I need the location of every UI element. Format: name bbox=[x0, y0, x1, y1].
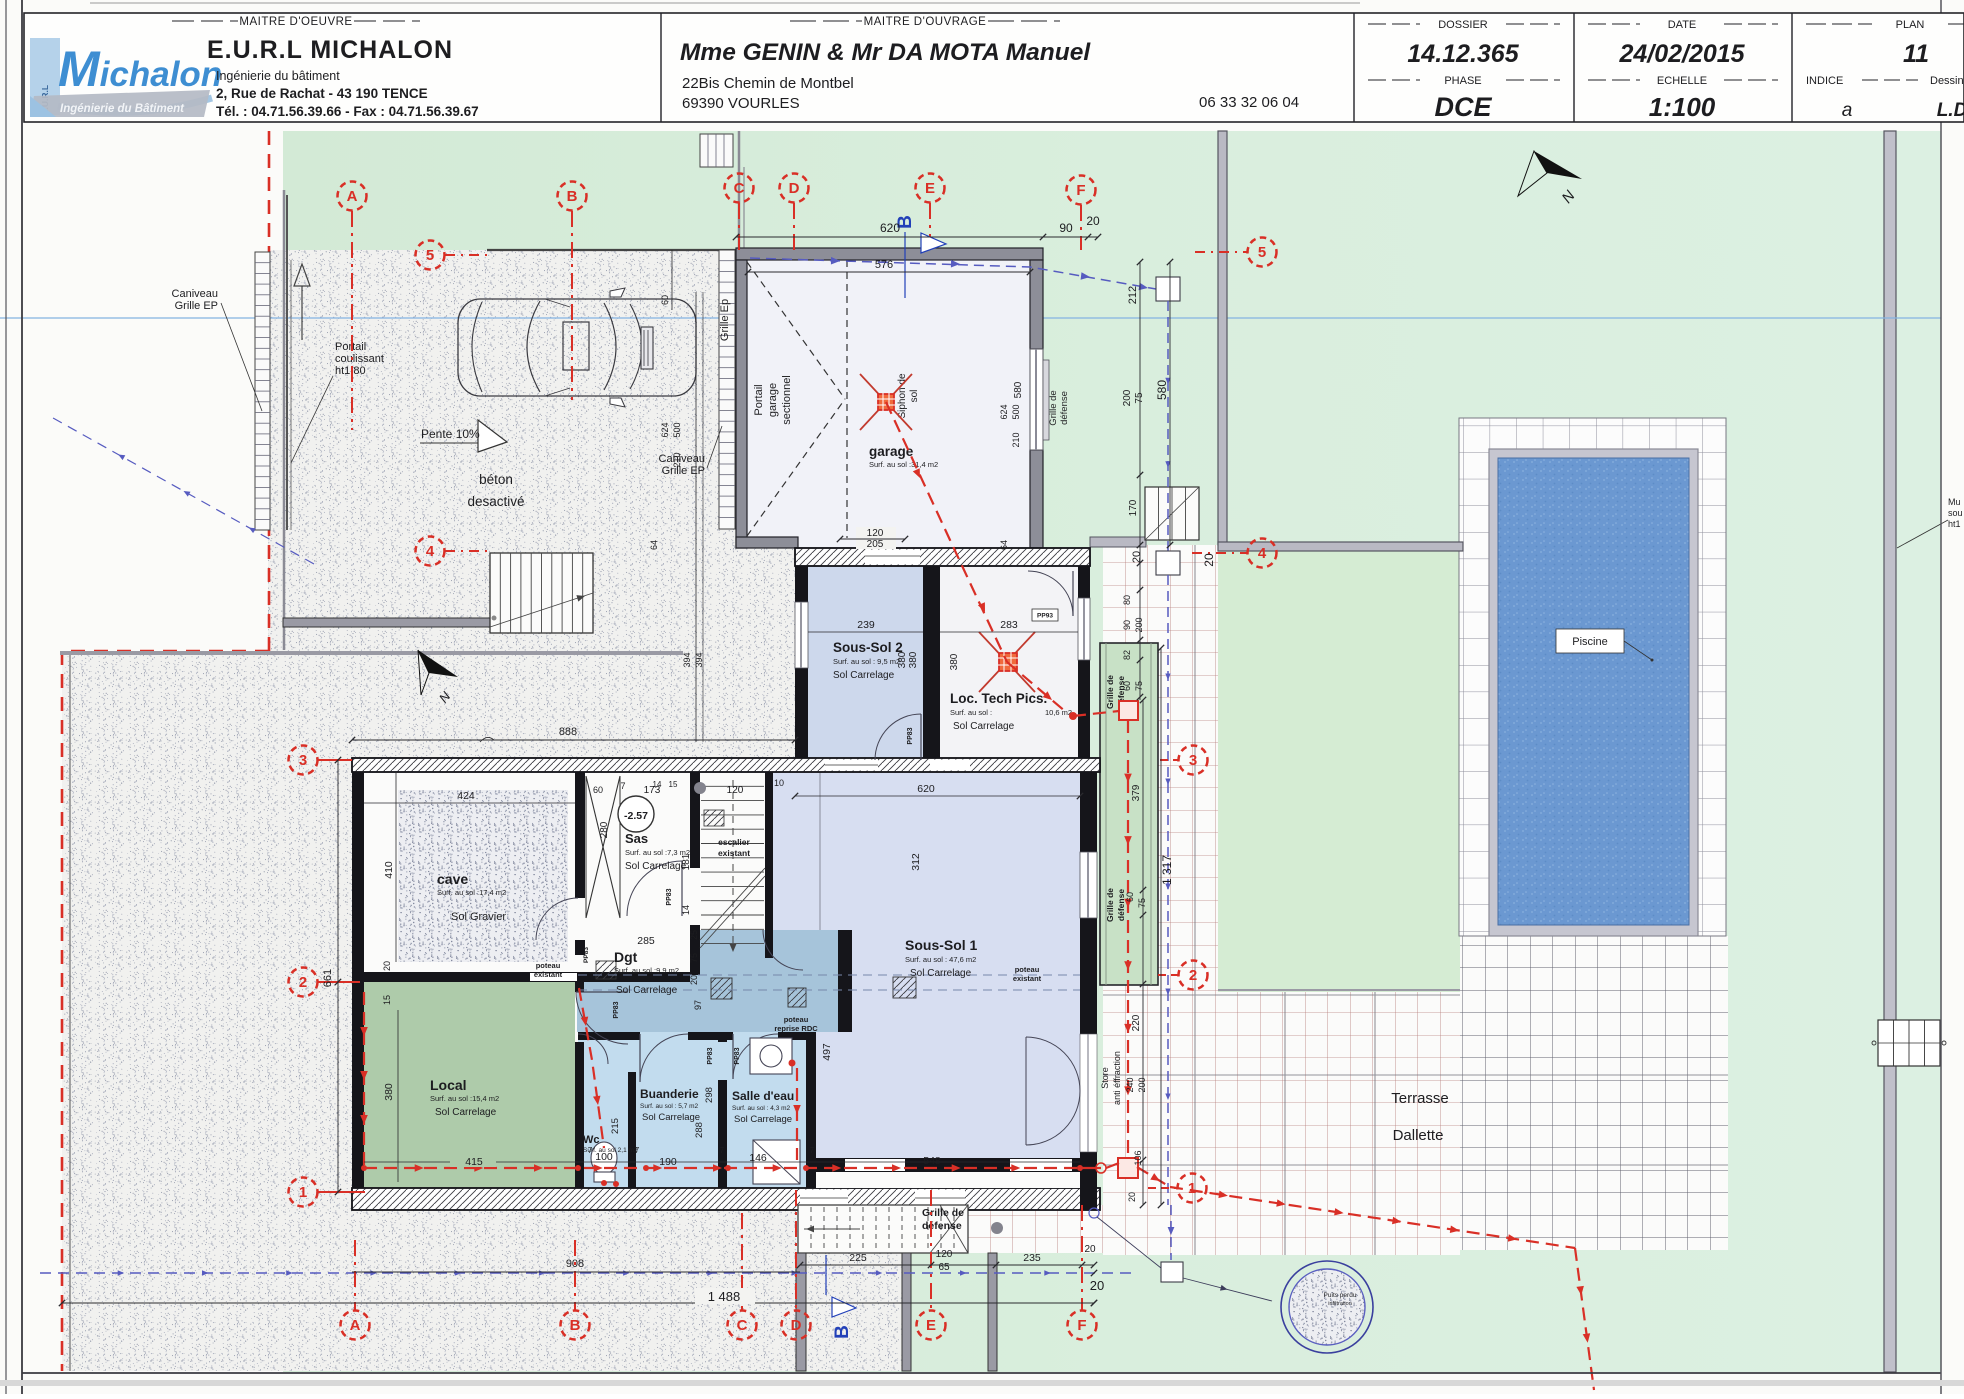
svg-text:PP83: PP83 bbox=[613, 1001, 620, 1018]
svg-text:DCE: DCE bbox=[1434, 92, 1492, 122]
svg-text:146: 146 bbox=[749, 1152, 767, 1164]
svg-text:173: 173 bbox=[644, 785, 661, 796]
svg-text:PP83: PP83 bbox=[583, 947, 590, 963]
svg-text:Surf. au sol : 5,7 m2: Surf. au sol : 5,7 m2 bbox=[640, 1103, 699, 1110]
svg-text:Grille de: Grille de bbox=[922, 1207, 964, 1219]
svg-text:15: 15 bbox=[669, 780, 678, 789]
svg-text:Sol Carrelage: Sol Carrelage bbox=[616, 985, 678, 996]
svg-text:20: 20 bbox=[382, 961, 392, 971]
svg-text:Local: Local bbox=[430, 1077, 467, 1093]
svg-text:escalier: escalier bbox=[718, 837, 750, 847]
svg-text:5: 5 bbox=[1258, 244, 1266, 261]
svg-text:1 317: 1 317 bbox=[1160, 855, 1174, 885]
svg-text:620: 620 bbox=[917, 783, 935, 795]
svg-text:75: 75 bbox=[1134, 392, 1145, 404]
svg-text:64: 64 bbox=[649, 540, 659, 550]
svg-text:Surf. au sol :: Surf. au sol : bbox=[950, 708, 992, 717]
svg-text:Sous-Sol 1: Sous-Sol 1 bbox=[905, 937, 978, 953]
svg-text:DATE: DATE bbox=[1668, 19, 1697, 31]
svg-text:Puits perdu: Puits perdu bbox=[1324, 1292, 1357, 1299]
svg-text:90: 90 bbox=[1059, 221, 1073, 235]
svg-text:181: 181 bbox=[681, 853, 692, 870]
svg-text:A: A bbox=[347, 188, 358, 205]
svg-text:7: 7 bbox=[588, 1146, 593, 1155]
svg-text:Dessiné: Dessiné bbox=[1930, 75, 1964, 87]
svg-text:1 488: 1 488 bbox=[708, 1289, 741, 1304]
svg-text:poteau: poteau bbox=[536, 961, 561, 970]
svg-text:Wc: Wc bbox=[583, 1134, 600, 1146]
svg-text:Grille EP: Grille EP bbox=[175, 300, 218, 312]
svg-text:A: A bbox=[350, 1317, 361, 1334]
svg-text:desactivé: desactivé bbox=[467, 494, 524, 509]
svg-text:1: 1 bbox=[1188, 1180, 1196, 1197]
svg-text:120: 120 bbox=[936, 1249, 953, 1260]
svg-text:3: 3 bbox=[299, 752, 307, 769]
svg-text:69390 VOURLES: 69390 VOURLES bbox=[682, 95, 800, 112]
svg-text:410: 410 bbox=[383, 861, 395, 879]
svg-text:240: 240 bbox=[1125, 1077, 1135, 1092]
svg-text:82: 82 bbox=[1122, 650, 1132, 660]
svg-text:190: 190 bbox=[659, 1156, 677, 1168]
svg-text:10,6 m2: 10,6 m2 bbox=[1045, 708, 1072, 717]
svg-text:C: C bbox=[734, 180, 745, 197]
svg-text:sou: sou bbox=[1948, 508, 1963, 518]
svg-text:Mme GENIN & Mr DA MOTA Manuel: Mme GENIN & Mr DA MOTA Manuel bbox=[680, 39, 1091, 66]
svg-text:210: 210 bbox=[672, 452, 682, 467]
svg-text:béton: béton bbox=[479, 472, 513, 487]
svg-text:20: 20 bbox=[1127, 1192, 1137, 1202]
svg-text:Ingénierie du bâtiment: Ingénierie du bâtiment bbox=[216, 69, 340, 83]
svg-text:ht1: ht1 bbox=[1948, 519, 1961, 529]
svg-text:reprise RDC: reprise RDC bbox=[774, 1024, 818, 1033]
svg-text:F: F bbox=[1077, 1317, 1086, 1334]
svg-text:14: 14 bbox=[681, 905, 691, 915]
svg-text:E: E bbox=[926, 1317, 936, 1334]
svg-text:Pente 10%: Pente 10% bbox=[421, 427, 480, 441]
svg-text:200: 200 bbox=[1134, 617, 1144, 632]
svg-text:PP83: PP83 bbox=[907, 727, 914, 744]
svg-text:PP83: PP83 bbox=[734, 1047, 741, 1064]
svg-text:120: 120 bbox=[867, 528, 884, 539]
svg-text:Portail: Portail bbox=[335, 341, 366, 353]
svg-text:60: 60 bbox=[660, 295, 670, 305]
svg-text:1:100: 1:100 bbox=[1649, 92, 1716, 122]
svg-text:Caniveau: Caniveau bbox=[172, 288, 218, 300]
svg-text:Surf. au sol :17,4 m2: Surf. au sol :17,4 m2 bbox=[437, 888, 506, 897]
svg-text:65: 65 bbox=[938, 1262, 950, 1273]
svg-text:défense: défense bbox=[922, 1220, 962, 1232]
svg-text:210: 210 bbox=[1011, 432, 1021, 447]
svg-text:a: a bbox=[1842, 100, 1853, 121]
svg-text:548: 548 bbox=[923, 1155, 941, 1167]
svg-text:312: 312 bbox=[910, 853, 922, 871]
svg-text:INDICE: INDICE bbox=[1806, 75, 1843, 87]
svg-text:239: 239 bbox=[857, 619, 875, 631]
svg-text:380: 380 bbox=[949, 653, 960, 670]
svg-text:coulissant: coulissant bbox=[335, 353, 384, 365]
svg-text:200: 200 bbox=[1122, 389, 1133, 406]
svg-text:Sol Gravier: Sol Gravier bbox=[451, 911, 506, 923]
svg-text:sectionnel: sectionnel bbox=[781, 375, 793, 425]
svg-text:06 33 32 06 04: 06 33 32 06 04 bbox=[1199, 94, 1299, 111]
svg-text:Grille de: Grille de bbox=[1105, 888, 1115, 922]
svg-text:497: 497 bbox=[821, 1043, 833, 1061]
svg-text:200: 200 bbox=[1137, 1077, 1147, 1092]
svg-text:225: 225 bbox=[849, 1252, 867, 1264]
svg-text:888: 888 bbox=[559, 726, 577, 738]
svg-text:20: 20 bbox=[1086, 214, 1100, 228]
svg-text:E.U.R.L MICHALON: E.U.R.L MICHALON bbox=[207, 36, 453, 64]
svg-text:L.D: L.D bbox=[1937, 100, 1964, 121]
svg-text:Sas: Sas bbox=[625, 831, 648, 846]
svg-text:3: 3 bbox=[1189, 752, 1197, 769]
svg-text:Sol Carrelage: Sol Carrelage bbox=[734, 1114, 792, 1125]
svg-text:24/02/2015: 24/02/2015 bbox=[1618, 40, 1745, 68]
svg-text:500: 500 bbox=[672, 422, 682, 437]
svg-text:anti éffraction: anti éffraction bbox=[1112, 1051, 1122, 1105]
svg-text:25: 25 bbox=[689, 930, 699, 940]
svg-text:Buanderie: Buanderie bbox=[640, 1087, 699, 1101]
svg-text:500: 500 bbox=[1011, 404, 1021, 419]
svg-text:170: 170 bbox=[1128, 499, 1139, 516]
svg-text:PLAN: PLAN bbox=[1896, 19, 1925, 31]
svg-text:B: B bbox=[832, 1325, 853, 1339]
svg-text:Sol Carrelage: Sol Carrelage bbox=[910, 968, 972, 979]
svg-text:Terrasse: Terrasse bbox=[1391, 1090, 1449, 1107]
svg-text:Grille de: Grille de bbox=[1048, 390, 1059, 425]
svg-text:Grille de: Grille de bbox=[1105, 675, 1115, 709]
svg-text:624: 624 bbox=[660, 422, 670, 437]
svg-text:620: 620 bbox=[880, 221, 900, 235]
svg-text:75: 75 bbox=[689, 953, 699, 963]
svg-text:-2.57: -2.57 bbox=[624, 810, 648, 822]
svg-text:MAITRE D'OEUVRE: MAITRE D'OEUVRE bbox=[239, 16, 352, 28]
svg-text:661: 661 bbox=[322, 969, 334, 987]
svg-text:212: 212 bbox=[1127, 286, 1139, 304]
svg-text:298: 298 bbox=[704, 1087, 715, 1103]
svg-text:poteau: poteau bbox=[784, 1015, 809, 1024]
svg-text:5: 5 bbox=[426, 247, 434, 264]
svg-text:235: 235 bbox=[1023, 1252, 1041, 1264]
svg-text:PP83: PP83 bbox=[666, 888, 673, 905]
svg-text:80: 80 bbox=[1122, 595, 1132, 605]
svg-text:394: 394 bbox=[682, 652, 692, 667]
svg-text:PHASE: PHASE bbox=[1444, 75, 1481, 87]
svg-text:14.12.365: 14.12.365 bbox=[1407, 40, 1519, 68]
svg-text:Sol Carrelage: Sol Carrelage bbox=[953, 721, 1015, 732]
svg-text:défense: défense bbox=[1059, 391, 1070, 425]
svg-text:379: 379 bbox=[1131, 784, 1142, 801]
svg-text:Store: Store bbox=[1100, 1067, 1110, 1089]
svg-text:Grille EP: Grille EP bbox=[662, 465, 705, 477]
svg-text:624: 624 bbox=[999, 404, 1009, 419]
svg-text:424: 424 bbox=[457, 790, 475, 802]
svg-text:11: 11 bbox=[1903, 40, 1929, 68]
svg-text:380: 380 bbox=[383, 1083, 395, 1101]
svg-text:Surf. au sol :9.9 m2: Surf. au sol :9.9 m2 bbox=[614, 966, 679, 975]
svg-text:394: 394 bbox=[694, 652, 704, 667]
svg-text:cave: cave bbox=[437, 871, 468, 887]
svg-text:MAITRE D'OUVRAGE: MAITRE D'OUVRAGE bbox=[864, 16, 987, 28]
svg-text:poteau: poteau bbox=[1015, 965, 1040, 974]
svg-text:Dallette: Dallette bbox=[1393, 1127, 1444, 1144]
svg-text:7: 7 bbox=[810, 1146, 815, 1155]
svg-text:Sous-Sol 2: Sous-Sol 2 bbox=[833, 640, 903, 655]
svg-text:580: 580 bbox=[1013, 381, 1024, 398]
svg-text:ECHELLE: ECHELLE bbox=[1657, 75, 1707, 87]
svg-text:15: 15 bbox=[382, 995, 392, 1005]
svg-text:100: 100 bbox=[595, 1151, 613, 1163]
svg-text:Grille Ep: Grille Ep bbox=[719, 299, 731, 341]
svg-text:415: 415 bbox=[465, 1156, 483, 1168]
svg-text:215: 215 bbox=[610, 1118, 621, 1134]
svg-text:97: 97 bbox=[693, 1000, 703, 1010]
svg-text:Piscine: Piscine bbox=[1572, 636, 1607, 648]
svg-text:220: 220 bbox=[1131, 1014, 1142, 1031]
svg-text:7: 7 bbox=[720, 1146, 725, 1155]
svg-text:285: 285 bbox=[637, 935, 655, 947]
svg-text:20: 20 bbox=[1131, 551, 1143, 563]
svg-text:sol: sol bbox=[909, 390, 920, 403]
svg-text:7: 7 bbox=[620, 781, 625, 791]
svg-text:Surf. au sol :15,4 m2: Surf. au sol :15,4 m2 bbox=[430, 1094, 499, 1103]
svg-text:380: 380 bbox=[908, 651, 919, 668]
svg-text:B: B bbox=[570, 1317, 581, 1334]
svg-text:existant: existant bbox=[718, 848, 750, 858]
svg-text:1: 1 bbox=[299, 1184, 307, 1201]
svg-text:90: 90 bbox=[1122, 620, 1132, 630]
svg-text:C: C bbox=[737, 1317, 748, 1334]
svg-text:20: 20 bbox=[1084, 1244, 1096, 1255]
svg-text:B: B bbox=[567, 188, 578, 205]
svg-text:75: 75 bbox=[1134, 681, 1144, 691]
svg-text:280: 280 bbox=[599, 821, 610, 838]
svg-text:10: 10 bbox=[774, 778, 784, 788]
svg-text:D: D bbox=[789, 180, 800, 197]
svg-text:Portail: Portail bbox=[753, 384, 765, 415]
svg-text:Dgt: Dgt bbox=[614, 949, 638, 965]
svg-text:60: 60 bbox=[1122, 681, 1132, 691]
svg-text:60: 60 bbox=[1125, 892, 1135, 902]
svg-text:4: 4 bbox=[426, 543, 435, 560]
svg-text:2, Rue de Rachat - 43 190 TENC: 2, Rue de Rachat - 43 190 TENCE bbox=[216, 86, 428, 101]
svg-text:22Bis Chemin de Montbel: 22Bis Chemin de Montbel bbox=[682, 75, 854, 92]
svg-text:4: 4 bbox=[1258, 545, 1267, 562]
svg-text:E: E bbox=[925, 180, 935, 197]
svg-text:Sol Carrelage: Sol Carrelage bbox=[642, 1112, 700, 1123]
svg-text:infiltration: infiltration bbox=[1328, 1301, 1352, 1307]
svg-text:120: 120 bbox=[727, 785, 744, 796]
svg-text:Salle d'eau: Salle d'eau bbox=[732, 1089, 794, 1103]
svg-text:F: F bbox=[1076, 182, 1085, 199]
svg-text:7: 7 bbox=[635, 1146, 640, 1155]
svg-text:64: 64 bbox=[999, 540, 1009, 550]
svg-text:Surf. au sol : 9,5 m2: Surf. au sol : 9,5 m2 bbox=[833, 657, 900, 666]
svg-text:existant: existant bbox=[534, 970, 563, 979]
svg-text:2: 2 bbox=[299, 974, 307, 991]
svg-text:Tél. : 04.71.56.39.66 - Fax :: Tél. : 04.71.56.39.66 - Fax : 04.71.56.3… bbox=[216, 104, 479, 119]
svg-text:Surf. au sol : 47,6 m2: Surf. au sol : 47,6 m2 bbox=[905, 955, 976, 964]
svg-text:20: 20 bbox=[1090, 1278, 1104, 1293]
svg-text:Sol Carrelage: Sol Carrelage bbox=[833, 670, 895, 681]
svg-text:908: 908 bbox=[566, 1258, 584, 1270]
svg-text:D: D bbox=[791, 1317, 802, 1334]
svg-text:288: 288 bbox=[694, 1122, 705, 1138]
svg-text:ht1.80: ht1.80 bbox=[335, 365, 366, 377]
svg-text:Sol Carrelage: Sol Carrelage bbox=[435, 1107, 497, 1118]
svg-text:576: 576 bbox=[875, 259, 893, 271]
svg-text:20: 20 bbox=[689, 975, 699, 985]
svg-text:PP83: PP83 bbox=[707, 1047, 714, 1064]
svg-text:580: 580 bbox=[1155, 380, 1169, 400]
svg-text:205: 205 bbox=[867, 539, 884, 550]
svg-text:Loc. Tech Pics.: Loc. Tech Pics. bbox=[950, 691, 1047, 706]
svg-text:106: 106 bbox=[1133, 1150, 1143, 1165]
svg-text:Mu: Mu bbox=[1948, 497, 1961, 507]
svg-text:20: 20 bbox=[1202, 553, 1216, 567]
svg-text:2: 2 bbox=[1189, 967, 1197, 984]
svg-text:380: 380 bbox=[897, 651, 908, 668]
svg-text:garage: garage bbox=[767, 383, 779, 417]
svg-text:Ingénierie du Bâtiment: Ingénierie du Bâtiment bbox=[60, 103, 185, 115]
svg-text:DOSSIER: DOSSIER bbox=[1438, 19, 1488, 31]
svg-text:75: 75 bbox=[1137, 898, 1147, 908]
svg-text:Sol Carrelage: Sol Carrelage bbox=[625, 861, 687, 872]
svg-text:283: 283 bbox=[1000, 619, 1018, 631]
svg-text:Surf. au sol :31,4 m2: Surf. au sol :31,4 m2 bbox=[869, 460, 938, 469]
svg-text:PP93: PP93 bbox=[1037, 613, 1053, 620]
svg-text:Surf. au sol : 4,3 m2: Surf. au sol : 4,3 m2 bbox=[732, 1105, 791, 1112]
svg-text:60: 60 bbox=[593, 785, 603, 795]
